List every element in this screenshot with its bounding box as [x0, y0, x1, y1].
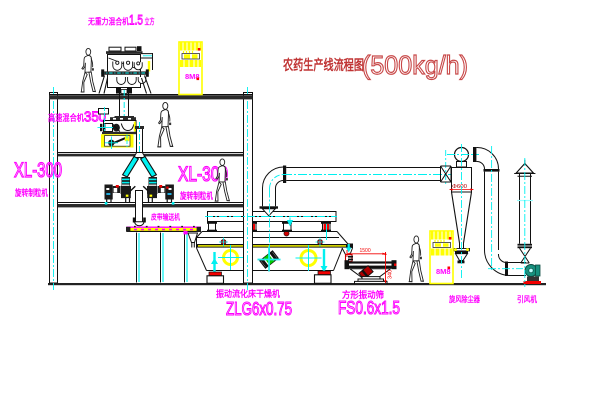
svg-text:旋转制粒机: 旋转制粒机 [14, 187, 48, 198]
svg-text:ZLG6x0.75: ZLG6x0.75 [226, 299, 292, 319]
svg-text:农药生产线流程图: 农药生产线流程图 [282, 57, 364, 73]
svg-text:引风机: 引风机 [517, 294, 537, 304]
svg-text:旋转制粒机: 旋转制粒机 [179, 190, 213, 201]
svg-text:FS0.6x1.5: FS0.6x1.5 [338, 298, 400, 318]
svg-text:(500kg/h): (500kg/h) [362, 50, 468, 80]
svg-text:340: 340 [388, 270, 394, 279]
svg-text:1500: 1500 [360, 248, 371, 254]
svg-text:高速混合机: 高速混合机 [48, 112, 84, 123]
svg-text:皮带输送机: 皮带输送机 [150, 212, 180, 222]
svg-text:XL-300: XL-300 [14, 159, 62, 182]
svg-text:立方: 立方 [145, 17, 155, 27]
svg-text:无重力混合机: 无重力混合机 [87, 17, 129, 27]
svg-text:振动流化床干燥机: 振动流化床干燥机 [216, 288, 280, 299]
svg-text:旋风除尘器: 旋风除尘器 [448, 294, 481, 304]
svg-text:1.5: 1.5 [129, 13, 143, 28]
